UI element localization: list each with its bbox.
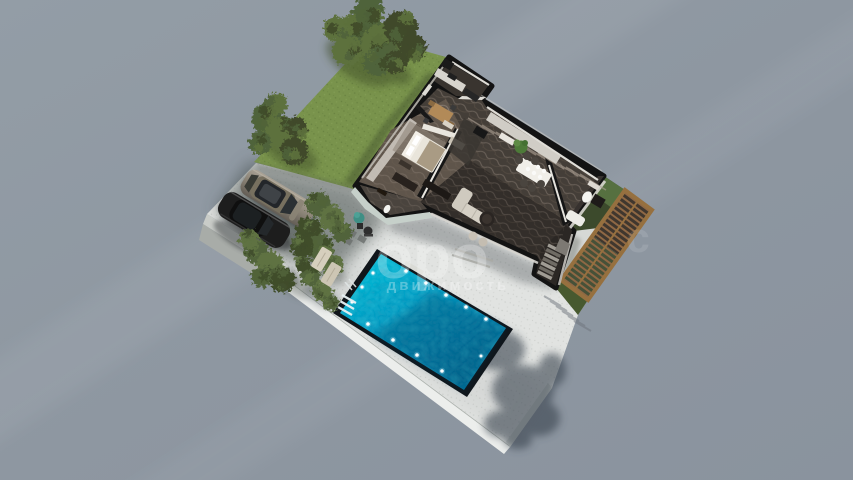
- svg-text:с: с: [626, 214, 649, 261]
- svg-text:движимость: движимость: [387, 277, 510, 294]
